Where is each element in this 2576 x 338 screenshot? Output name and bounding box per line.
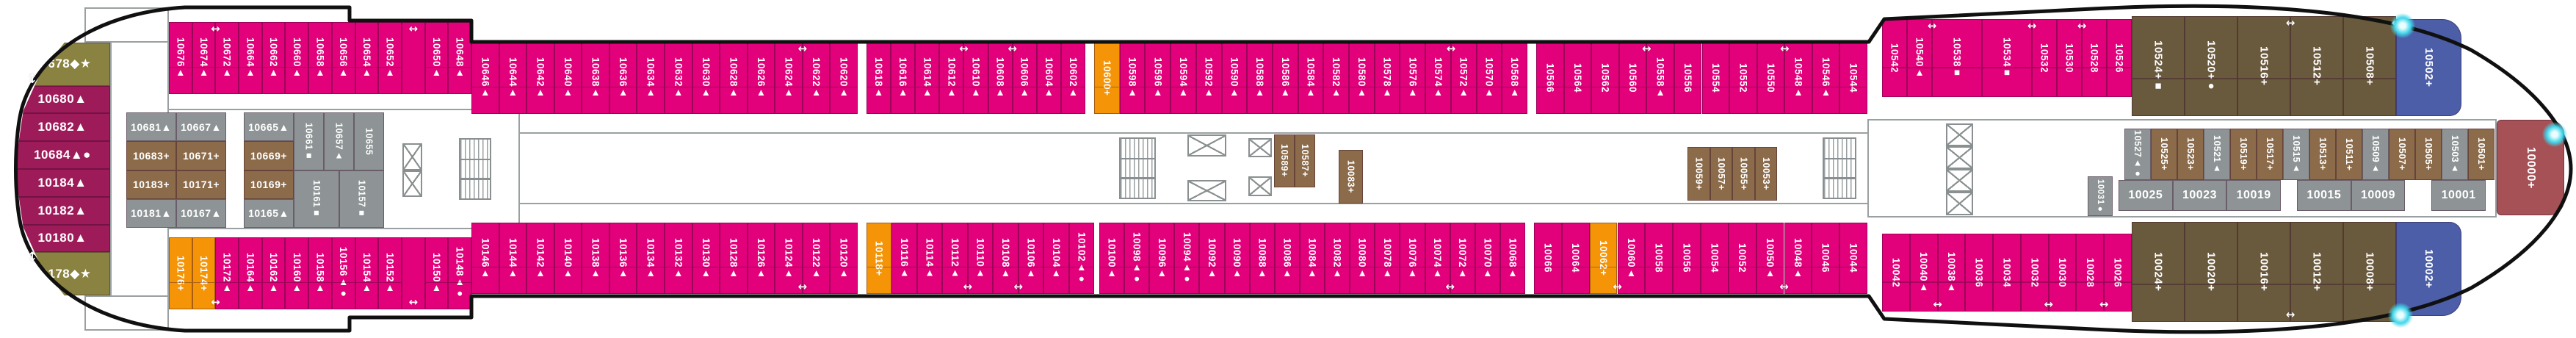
cabin-10030[interactable]: 10030 xyxy=(2049,234,2077,312)
cabin-10083[interactable]: 10083+ xyxy=(1339,150,1363,204)
cabin-10678[interactable]: 10678◆★ xyxy=(15,43,110,86)
cabin-10513[interactable]: 10513+ xyxy=(2309,129,2336,180)
cabin-number-label: 10050▲ xyxy=(1765,238,1776,279)
cabin-10009[interactable]: 10009 xyxy=(2351,180,2406,211)
cabin-number-label: 10019 xyxy=(2237,189,2271,202)
cabin-10626[interactable]: 10626▲ xyxy=(748,42,775,114)
cabin-10587[interactable]: 10587+ xyxy=(1295,134,1315,187)
cabin-number-label: 10634▲ xyxy=(645,57,656,98)
cabin-10098[interactable]: 10098▲● xyxy=(1124,223,1149,294)
cabin-10086[interactable]: 10086▲ xyxy=(1275,223,1300,294)
cabin-10558[interactable]: 10558▲ xyxy=(1646,42,1674,114)
cabin-10060[interactable]: 10060▲ xyxy=(1618,223,1646,294)
cabin-10576[interactable]: 10576▲ xyxy=(1400,42,1425,114)
cabin-10092[interactable]: 10092▲ xyxy=(1199,223,1224,294)
cabin-10618[interactable]: 10618▲ xyxy=(866,42,891,114)
cabin-number-label: 10598▲ xyxy=(1127,57,1138,98)
cabin-10090[interactable]: 10090▲ xyxy=(1225,223,1250,294)
cabin-number-label: 10642▲ xyxy=(535,57,546,98)
cabin-10134[interactable]: 10134▲ xyxy=(637,223,665,294)
cabin-10162[interactable]: 10162▲ xyxy=(262,237,286,309)
cabin-10012[interactable]: 10012+ xyxy=(2290,222,2343,322)
cabin-10680[interactable]: 10680▲ xyxy=(15,86,110,114)
cabin-10634[interactable]: 10634▲ xyxy=(637,42,665,114)
cabin-10031[interactable]: 10031● xyxy=(2088,176,2113,216)
cabin-10548[interactable]: 10548▲ xyxy=(1784,42,1812,114)
cabin-10509[interactable]: 10509▲ xyxy=(2362,129,2389,180)
cabin-10658[interactable]: 10658▲ xyxy=(308,22,332,94)
cabin-10682[interactable]: 10682▲ xyxy=(15,113,110,141)
cabin-number-label: 10684▲● xyxy=(34,148,91,162)
cabin-10150[interactable]: 10150▲ xyxy=(425,237,449,309)
cabin-number-label: 10128▲ xyxy=(728,238,739,279)
cabin-10056[interactable]: 10056 xyxy=(1673,223,1701,294)
cabin-10505[interactable]: 10505+ xyxy=(2415,129,2442,180)
cabin-10523[interactable]: 10523+ xyxy=(2177,129,2204,180)
cabin-10636[interactable]: 10636▲ xyxy=(609,42,637,114)
cabin-10594[interactable]: 10594▲ xyxy=(1171,42,1196,114)
cabin-10066[interactable]: 10066 xyxy=(1534,223,1562,294)
cabin-10183[interactable]: 10183+ xyxy=(126,170,176,199)
cabin-number-label: 10152▲ xyxy=(385,253,396,294)
cabin-10582[interactable]: 10582▲ xyxy=(1323,42,1349,114)
cabin-10078[interactable]: 10078▲ xyxy=(1375,223,1400,294)
cabin-10672[interactable]: 10672▲ xyxy=(215,22,239,94)
cabin-number-label: 10680▲ xyxy=(37,92,87,107)
cabin-10034[interactable]: 10034 xyxy=(1993,234,2021,312)
cabin-10167[interactable]: 10167▲ xyxy=(176,199,226,228)
cabin-10608[interactable]: 10608▲ xyxy=(988,42,1013,114)
cabin-10130[interactable]: 10130▲ xyxy=(692,223,720,294)
cabin-10178[interactable]: 10178◆★ xyxy=(15,252,110,295)
cabin-10026[interactable]: 10026 xyxy=(2104,234,2132,312)
cabin-10048[interactable]: 10048▲ xyxy=(1784,223,1812,294)
cabin-10165[interactable]: 10165▲ xyxy=(244,199,294,228)
cabin-10664[interactable]: 10664▲ xyxy=(239,22,262,94)
cabin-number-label: 10016+ xyxy=(2258,252,2271,291)
cabin-10655[interactable]: 10655 xyxy=(354,112,384,170)
cabin-10630[interactable]: 10630▲ xyxy=(692,42,720,114)
cabin-number-label: 10140▲ xyxy=(562,238,574,279)
cabin-number-label: 10564 xyxy=(1572,63,1583,93)
cabin-10588[interactable]: 10588▲ xyxy=(1247,42,1273,114)
cabin-10520[interactable]: 10520+● xyxy=(2185,16,2237,116)
cabin-number-label: 10078▲ xyxy=(1382,238,1393,279)
cabin-number-label: 10589+ xyxy=(1279,144,1289,177)
cabin-number-label: 10678◆★ xyxy=(33,57,91,71)
cabin-number-label: 10178◆★ xyxy=(33,267,91,281)
cabin-10062[interactable]: 10062+ xyxy=(1590,223,1618,294)
cabin-10054[interactable]: 10054 xyxy=(1701,223,1729,294)
cabin-10102[interactable]: 10102▲● xyxy=(1069,223,1094,294)
cabin-10538[interactable]: 10538■ xyxy=(1932,19,1982,97)
cabin-10158[interactable]: 10158▲ xyxy=(308,237,332,309)
cabin-number-label: 10655 xyxy=(364,128,375,155)
cabin-number-label: 10656▲ xyxy=(338,37,349,79)
cabin-10120[interactable]: 10120▲ xyxy=(830,223,858,294)
cabin-number-label: 10096▲ xyxy=(1157,238,1168,279)
cabin-10564[interactable]: 10564 xyxy=(1564,42,1592,114)
cabin-10070[interactable]: 10070▲ xyxy=(1475,223,1500,294)
cabin-number-label: 10620▲ xyxy=(839,57,850,98)
cabin-10646[interactable]: 10646▲ xyxy=(471,42,499,114)
cabin-10040[interactable]: 10040▲ xyxy=(1910,234,1938,312)
cabin-10610[interactable]: 10610▲ xyxy=(963,42,988,114)
cabin-10628[interactable]: 10628▲ xyxy=(720,42,748,114)
cabin-10657[interactable]: 10657▲ xyxy=(324,112,354,170)
cabin-number-label: 10046 xyxy=(1820,243,1831,273)
cabin-10554[interactable]: 10554 xyxy=(1702,42,1730,114)
cabin-10604[interactable]: 10604▲ xyxy=(1037,42,1061,114)
cabin-number-label: 10156▲● xyxy=(338,247,349,299)
cabin-10144[interactable]: 10144▲ xyxy=(499,223,527,294)
cabin-10589[interactable]: 10589+ xyxy=(1274,134,1295,187)
cabin-10176[interactable]: 10176+ xyxy=(169,237,192,309)
cabin-number-label: 10519+ xyxy=(2238,137,2248,170)
cabin-10082[interactable]: 10082▲ xyxy=(1325,223,1350,294)
cabin-10016[interactable]: 10016+ xyxy=(2237,222,2290,322)
cabin-number-label: 10114▲ xyxy=(925,238,936,278)
cabin-10660[interactable]: 10660▲ xyxy=(285,22,308,94)
cabin-10574[interactable]: 10574▲ xyxy=(1425,42,1451,114)
cabin-10128[interactable]: 10128▲ xyxy=(720,223,748,294)
cabin-10094[interactable]: 10094▲● xyxy=(1174,223,1199,294)
cabin-number-label: 10515▲ xyxy=(2291,135,2301,173)
cabin-number-label: 10080▲ xyxy=(1357,238,1368,279)
cabin-10138[interactable]: 10138▲ xyxy=(582,223,609,294)
cabin-10562[interactable]: 10562 xyxy=(1591,42,1619,114)
cabin-number-label: 10562 xyxy=(1599,63,1610,93)
cabin-10501[interactable]: 10501+ xyxy=(2468,129,2494,180)
cabin-number-label: 10112▲ xyxy=(949,238,960,278)
cabin-10122[interactable]: 10122▲ xyxy=(803,223,831,294)
cabin-10084[interactable]: 10084▲ xyxy=(1300,223,1325,294)
cabin-10525[interactable]: 10525+ xyxy=(2151,129,2177,180)
cabin-10681[interactable]: 10681▲ xyxy=(126,112,176,141)
cabin-number-label: 10108▲ xyxy=(1000,238,1011,279)
cabin-10044[interactable]: 10044 xyxy=(1839,223,1867,294)
cabin-10001[interactable]: 10001 xyxy=(2431,180,2486,211)
cabin-number-label: 10517+ xyxy=(2265,137,2275,170)
cabin-10036[interactable]: 10036 xyxy=(1965,234,1993,312)
cabin-number-label: 10548▲ xyxy=(1793,57,1804,98)
cabin-10521[interactable]: 10521▲ xyxy=(2204,129,2230,180)
cabin-number-label: 10183+ xyxy=(133,179,170,190)
cabin-10020[interactable]: 10020+ xyxy=(2185,222,2237,322)
cabin-10184[interactable]: 10184▲ xyxy=(15,169,110,197)
cabin-10590[interactable]: 10590▲ xyxy=(1222,42,1248,114)
cabin-10676[interactable]: 10676▲ xyxy=(169,22,192,94)
cabin-10152[interactable]: 10152▲ xyxy=(378,237,402,309)
cabin-number-label: 10665▲ xyxy=(248,121,289,133)
cabin-number-label: 10558▲ xyxy=(1655,57,1666,98)
cabin-10154[interactable]: 10154▲ xyxy=(355,237,379,309)
cabin-number-label: 10098▲● xyxy=(1132,232,1143,284)
cabin-10665[interactable]: 10665▲ xyxy=(244,112,294,141)
cabin-10532[interactable]: 10532 xyxy=(2032,19,2057,97)
cabin-10612[interactable]: 10612▲ xyxy=(939,42,963,114)
cabin-10104[interactable]: 10104▲ xyxy=(1043,223,1068,294)
cabin-10644[interactable]: 10644▲ xyxy=(499,42,527,114)
cabin-number-label: 10070▲ xyxy=(1482,238,1493,279)
cabin-number-label: 10610▲ xyxy=(970,57,981,98)
cabin-10025[interactable]: 10025 xyxy=(2119,180,2173,211)
cabin-10540[interactable]: 10540▲ xyxy=(1907,19,1932,97)
cabin-10050[interactable]: 10050▲ xyxy=(1756,223,1784,294)
cabin-10503[interactable]: 10503▲ xyxy=(2442,129,2468,180)
cabin-number-label: 10062+ xyxy=(1598,240,1609,276)
cabin-10620[interactable]: 10620▲ xyxy=(830,42,858,114)
cabin-number-label: 10544 xyxy=(1848,63,1859,93)
cabin-10566[interactable]: 10566 xyxy=(1536,42,1564,114)
cabin-10164[interactable]: 10164▲ xyxy=(239,237,262,309)
cabin-number-label: 10040▲ xyxy=(1918,252,1929,293)
cabin-10023[interactable]: 10023 xyxy=(2173,180,2227,211)
cabin-10126[interactable]: 10126▲ xyxy=(748,223,775,294)
cabin-number-label: 10059+ xyxy=(1693,157,1704,190)
cabin-10028[interactable]: 10028 xyxy=(2076,234,2104,312)
cabin-10182[interactable]: 10182▲ xyxy=(15,197,110,225)
cabin-10118[interactable]: 10118+ xyxy=(866,223,891,294)
cabin-10057[interactable]: 10057+ xyxy=(1710,147,1733,201)
cabin-10598[interactable]: 10598▲ xyxy=(1120,42,1146,114)
cabin-number-label: 10161■ xyxy=(311,180,322,218)
cabin-10160[interactable]: 10160▲ xyxy=(285,237,308,309)
cabin-10171[interactable]: 10171+ xyxy=(176,170,226,199)
cabin-10519[interactable]: 10519+ xyxy=(2230,129,2257,180)
cabin-10642[interactable]: 10642▲ xyxy=(527,42,554,114)
cabin-10652[interactable]: 10652▲ xyxy=(378,22,402,94)
cabin-10515[interactable]: 10515▲ xyxy=(2283,129,2309,180)
cabin-10684[interactable]: 10684▲● xyxy=(15,141,110,169)
cabin-10002[interactable]: 10002+ xyxy=(2396,222,2461,316)
cabin-10132[interactable]: 10132▲ xyxy=(665,223,692,294)
cabin-10552[interactable]: 10552 xyxy=(1729,42,1757,114)
cabin-number-label: 10524+■ xyxy=(2152,40,2165,93)
cabin-10560[interactable]: 10560 xyxy=(1619,42,1647,114)
cabin-10568[interactable]: 10568▲ xyxy=(1502,42,1527,114)
elevator-icon xyxy=(1946,146,1973,169)
cabin-10008[interactable]: 10008+ xyxy=(2343,222,2396,322)
cabin-10556[interactable]: 10556 xyxy=(1674,42,1702,114)
cabin-10140[interactable]: 10140▲ xyxy=(554,223,582,294)
cabin-10142[interactable]: 10142▲ xyxy=(527,223,554,294)
cabin-10055[interactable]: 10055+ xyxy=(1732,147,1755,201)
cabin-10661[interactable]: 10661■ xyxy=(294,112,324,170)
cabin-10638[interactable]: 10638▲ xyxy=(582,42,609,114)
cabin-number-label: 10683+ xyxy=(133,150,170,162)
cabin-10527[interactable]: 10527▲● xyxy=(2124,129,2151,180)
cabin-10578[interactable]: 10578▲ xyxy=(1375,42,1400,114)
cabin-10600[interactable]: 10600+ xyxy=(1094,42,1120,114)
cabin-10042[interactable]: 10042 xyxy=(1882,234,1910,312)
cabin-10656[interactable]: 10656▲ xyxy=(332,22,355,94)
cabin-10511[interactable]: 10511+ xyxy=(2336,129,2362,180)
cabin-number-label: 10664▲ xyxy=(245,37,256,79)
cabin-10112[interactable]: 10112▲ xyxy=(942,223,967,294)
cabin-number-label: 10604▲ xyxy=(1043,57,1054,98)
cabin-number-label: 10608▲ xyxy=(995,57,1006,98)
cabin-10622[interactable]: 10622▲ xyxy=(803,42,831,114)
cabin-10528[interactable]: 10528 xyxy=(2082,19,2107,97)
cabin-10136[interactable]: 10136▲ xyxy=(609,223,637,294)
cabin-10572[interactable]: 10572▲ xyxy=(1451,42,1477,114)
cabin-10516[interactable]: 10516+ xyxy=(2237,16,2290,116)
cabin-10517[interactable]: 10517+ xyxy=(2257,129,2283,180)
cabin-10076[interactable]: 10076▲ xyxy=(1400,223,1425,294)
cabin-10662[interactable]: 10662▲ xyxy=(262,22,286,94)
cabin-10602[interactable]: 10602▲ xyxy=(1061,42,1085,114)
cabin-number-label: 10525+ xyxy=(2159,137,2169,170)
cabin-10648[interactable]: 10648▲ xyxy=(448,22,471,94)
cabin-number-label: 10176+ xyxy=(175,256,186,291)
cabin-10156[interactable]: 10156▲● xyxy=(332,237,355,309)
cabin-number-label: 10612▲ xyxy=(946,57,957,98)
cabin-number-label: 10520+● xyxy=(2205,40,2218,93)
cabin-number-label: 10511+ xyxy=(2344,138,2354,170)
deck-plan: 10676▲10674▲↔10672▲10664▲10662▲10660▲106… xyxy=(0,0,2576,338)
cabin-10110[interactable]: 10110▲ xyxy=(968,223,993,294)
cabin-10674[interactable]: 10674▲ xyxy=(192,22,216,94)
cabin-10512[interactable]: 10512+ xyxy=(2290,16,2343,116)
cabin-10632[interactable]: 10632▲ xyxy=(665,42,692,114)
cabin-number-label: 10560 xyxy=(1627,63,1638,93)
cabin-10174[interactable]: 10174+ xyxy=(192,237,216,309)
cabin-10072[interactable]: 10072▲ xyxy=(1450,223,1475,294)
cabin-10596[interactable]: 10596▲ xyxy=(1145,42,1171,114)
cabin-10148[interactable]: 10148▲● xyxy=(448,237,471,309)
cabin-10624[interactable]: 10624▲ xyxy=(775,42,803,114)
elevator-icon xyxy=(402,143,422,170)
cabin-number-label: 10090▲ xyxy=(1231,238,1242,279)
cabin-10683[interactable]: 10683+ xyxy=(126,141,176,170)
cabin-number-label: 10000+ xyxy=(2524,147,2537,189)
cabin-10534[interactable]: 10534■ xyxy=(1982,19,2032,97)
cabin-spacer xyxy=(402,22,425,94)
cabin-10096[interactable]: 10096▲ xyxy=(1149,223,1174,294)
cabin-number-label: 10184▲ xyxy=(37,176,87,190)
cabin-number-label: 10624▲ xyxy=(784,57,795,98)
cabin-number-label: 10657▲ xyxy=(334,123,344,161)
cabin-10544[interactable]: 10544 xyxy=(1839,42,1867,114)
cabin-10024[interactable]: 10024+ xyxy=(2132,222,2185,322)
stairs-icon xyxy=(1119,137,1156,199)
cabin-10108[interactable]: 10108▲ xyxy=(993,223,1018,294)
cabin-number-label: 10164▲ xyxy=(245,253,256,294)
cabin-10526[interactable]: 10526 xyxy=(2107,19,2132,97)
cabin-10046[interactable]: 10046 xyxy=(1812,223,1839,294)
cabin-number-label: 10566 xyxy=(1544,63,1555,93)
cabin-10546[interactable]: 10546▲ xyxy=(1812,42,1840,114)
cabin-10032[interactable]: 10032 xyxy=(2021,234,2049,312)
cabin-10080[interactable]: 10080▲ xyxy=(1350,223,1375,294)
cabin-10100[interactable]: 10100▲ xyxy=(1099,223,1124,294)
cabin-number-label: 10501+ xyxy=(2476,137,2486,170)
cabin-10669[interactable]: 10669+ xyxy=(244,141,294,170)
cabin-10542[interactable]: 10542 xyxy=(1882,19,1907,97)
cabin-10606[interactable]: 10606▲ xyxy=(1013,42,1037,114)
cabin-10161[interactable]: 10161■ xyxy=(294,170,339,228)
cabin-10667[interactable]: 10667▲ xyxy=(176,112,226,141)
cabin-10015[interactable]: 10015 xyxy=(2297,180,2351,211)
cabin-10507[interactable]: 10507+ xyxy=(2389,129,2415,180)
cabin-number-label: 10661■ xyxy=(304,123,314,161)
cabin-number-label: 10540▲ xyxy=(1914,37,1925,79)
cabin-number-label: 10586▲ xyxy=(1280,57,1291,98)
cabin-10181[interactable]: 10181▲ xyxy=(126,199,176,228)
cabin-10116[interactable]: 10116▲ xyxy=(891,223,916,294)
cabin-10053[interactable]: 10053+ xyxy=(1755,147,1778,201)
cabin-10570[interactable]: 10570▲ xyxy=(1477,42,1502,114)
cabin-10169[interactable]: 10169+ xyxy=(244,170,294,199)
cabin-10172[interactable]: 10172▲ xyxy=(215,237,239,309)
cabin-10640[interactable]: 10640▲ xyxy=(554,42,582,114)
cabin-number-label: 10094▲● xyxy=(1182,232,1193,284)
cabin-number-label: 10180▲ xyxy=(37,231,87,245)
cabin-10586[interactable]: 10586▲ xyxy=(1273,42,1298,114)
cabin-10038[interactable]: 10038▲ xyxy=(1938,234,1966,312)
cabin-10074[interactable]: 10074▲ xyxy=(1425,223,1450,294)
cabin-10114[interactable]: 10114▲ xyxy=(917,223,942,294)
cabin-10616[interactable]: 10616▲ xyxy=(891,42,915,114)
cabin-10592[interactable]: 10592▲ xyxy=(1196,42,1222,114)
cabin-10068[interactable]: 10068▲ xyxy=(1500,223,1525,294)
cabin-10524[interactable]: 10524+■ xyxy=(2132,16,2185,116)
cabin-number-label: 10587+ xyxy=(1300,144,1310,177)
cabin-number-label: 10594▲ xyxy=(1178,57,1189,98)
cabin-10654[interactable]: 10654▲ xyxy=(355,22,379,94)
cabin-10124[interactable]: 10124▲ xyxy=(775,223,803,294)
cabin-number-label: 10136▲ xyxy=(618,238,629,279)
cabin-10059[interactable]: 10059+ xyxy=(1687,147,1710,201)
cabin-number-label: 10104▲ xyxy=(1051,238,1062,279)
cabin-number-label: 10650▲ xyxy=(431,37,442,79)
cabin-number-label: 10606▲ xyxy=(1019,57,1030,98)
cabin-number-label: 10669+ xyxy=(250,150,287,162)
cabin-10019[interactable]: 10019 xyxy=(2226,180,2281,211)
cabin-number-label: 10676▲ xyxy=(175,37,186,79)
cabin-number-label: 10532 xyxy=(2039,43,2050,73)
cabin-10508[interactable]: 10508+ xyxy=(2343,16,2396,116)
cabin-number-label: 10578▲ xyxy=(1382,57,1393,98)
cabin-10580[interactable]: 10580▲ xyxy=(1349,42,1375,114)
cabin-10584[interactable]: 10584▲ xyxy=(1298,42,1324,114)
cabin-number-label: 10523+ xyxy=(2185,137,2196,170)
cabin-10052[interactable]: 10052 xyxy=(1729,223,1756,294)
cabin-10550[interactable]: 10550 xyxy=(1757,42,1785,114)
cabin-number-label: 10124▲ xyxy=(784,238,795,279)
cabin-10146[interactable]: 10146▲ xyxy=(471,223,499,294)
cabin-number-label: 10024+ xyxy=(2152,252,2165,291)
cabin-number-label: 10681▲ xyxy=(131,121,172,133)
cabin-10064[interactable]: 10064 xyxy=(1562,223,1590,294)
cabin-10106[interactable]: 10106▲ xyxy=(1019,223,1043,294)
cabin-10157[interactable]: 10157■ xyxy=(339,170,385,228)
cabin-number-label: 10082▲ xyxy=(1332,238,1343,279)
cabin-number-label: 10572▲ xyxy=(1458,57,1469,98)
cabin-number-label: 10526 xyxy=(2114,43,2125,73)
cabin-10614[interactable]: 10614▲ xyxy=(915,42,939,114)
cabin-10530[interactable]: 10530 xyxy=(2057,19,2082,97)
cabin-number-label: 10088▲ xyxy=(1256,238,1267,279)
cabin-10671[interactable]: 10671+ xyxy=(176,141,226,170)
cabin-number-label: 10068▲ xyxy=(1507,238,1518,279)
cabin-10088[interactable]: 10088▲ xyxy=(1250,223,1275,294)
cabin-10650[interactable]: 10650▲ xyxy=(425,22,449,94)
cabin-number-label: 10580▲ xyxy=(1356,57,1367,98)
cabin-10058[interactable]: 10058 xyxy=(1645,223,1673,294)
cabin-10180[interactable]: 10180▲ xyxy=(15,225,110,253)
